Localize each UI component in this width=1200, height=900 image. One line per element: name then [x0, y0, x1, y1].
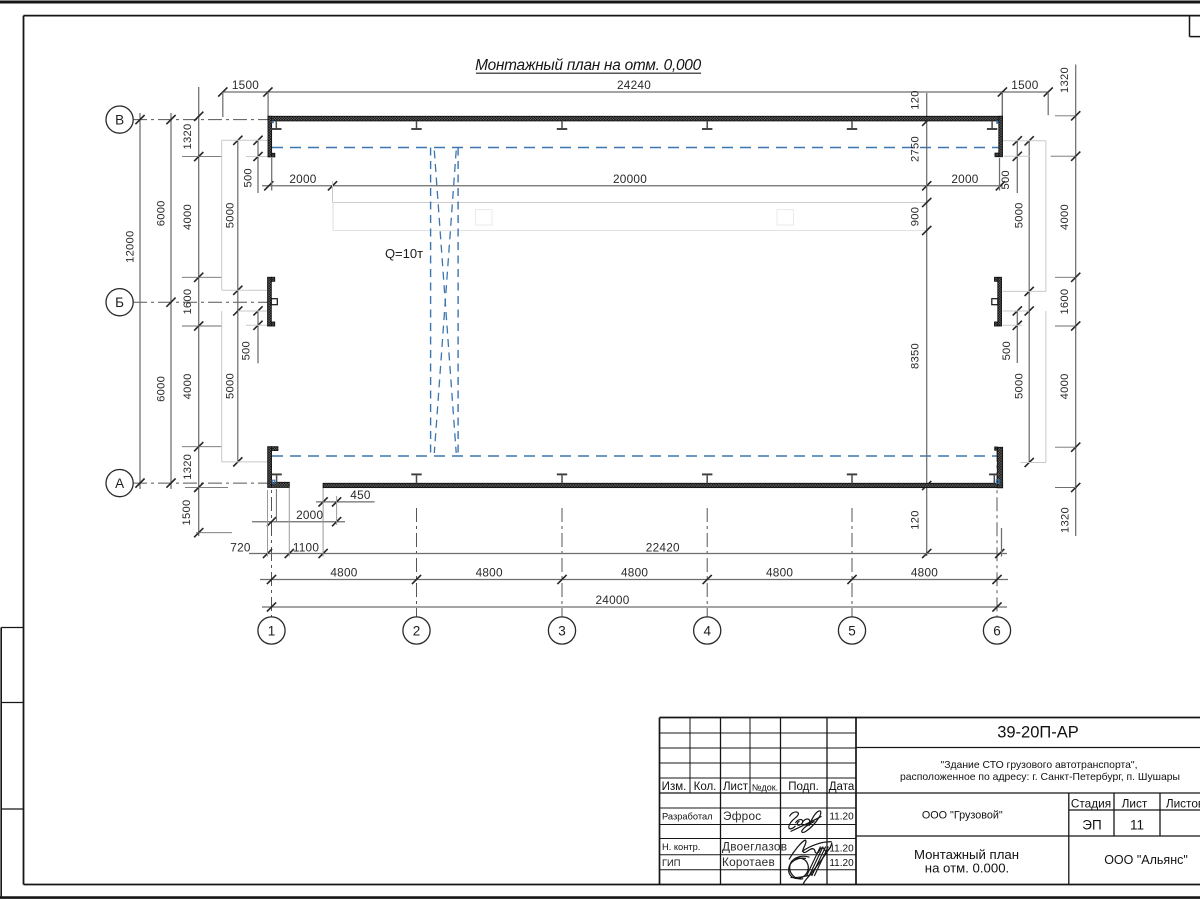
svg-text:5000: 5000	[1013, 373, 1025, 399]
svg-text:2: 2	[413, 623, 421, 638]
svg-text:6: 6	[993, 623, 1001, 638]
svg-text:1100: 1100	[293, 541, 320, 555]
svg-text:4800: 4800	[330, 566, 357, 580]
svg-text:Листов: Листов	[1166, 797, 1200, 811]
svg-text:Q=10т: Q=10т	[385, 246, 423, 261]
svg-text:4000: 4000	[1059, 204, 1071, 230]
svg-text:500: 500	[241, 341, 253, 360]
svg-text:1320: 1320	[1060, 507, 1072, 533]
svg-text:120: 120	[909, 90, 921, 109]
svg-text:Кол.: Кол.	[694, 781, 717, 793]
svg-text:2000: 2000	[951, 172, 978, 186]
svg-text:В: В	[115, 112, 124, 127]
svg-text:№док.: №док.	[752, 783, 778, 793]
svg-text:20000: 20000	[613, 172, 647, 186]
svg-text:2000: 2000	[289, 172, 316, 186]
svg-text:5000: 5000	[225, 202, 237, 228]
svg-text:1320: 1320	[1059, 67, 1071, 93]
svg-text:1600: 1600	[1059, 289, 1071, 315]
svg-text:4: 4	[703, 623, 711, 638]
svg-text:500: 500	[242, 168, 254, 187]
svg-text:"Здание СТО грузового автотран: "Здание СТО грузового автотранспорта",	[941, 760, 1138, 771]
svg-text:24240: 24240	[617, 78, 651, 92]
svg-text:Лист: Лист	[723, 781, 749, 793]
svg-text:11.20: 11.20	[829, 812, 854, 823]
svg-text:11: 11	[1130, 818, 1144, 833]
svg-text:ООО "Грузовой": ООО "Грузовой"	[922, 810, 1003, 822]
svg-text:39-20П-АР: 39-20П-АР	[997, 724, 1079, 742]
svg-text:5000: 5000	[1013, 202, 1025, 228]
svg-text:2750: 2750	[909, 136, 921, 162]
svg-text:2000: 2000	[296, 508, 323, 522]
svg-text:11.20: 11.20	[829, 858, 854, 869]
svg-text:4800: 4800	[476, 566, 503, 580]
svg-text:5000: 5000	[225, 373, 237, 399]
svg-text:1500: 1500	[181, 500, 193, 526]
svg-text:450: 450	[350, 488, 371, 502]
svg-text:24000: 24000	[595, 593, 629, 607]
svg-text:11.20: 11.20	[829, 843, 854, 854]
svg-text:500: 500	[1001, 341, 1013, 360]
svg-text:6000: 6000	[155, 376, 167, 402]
svg-text:8350: 8350	[909, 343, 921, 369]
svg-text:Двоеглазов: Двоеглазов	[722, 840, 787, 854]
svg-text:Коротаев: Коротаев	[722, 855, 775, 869]
svg-text:5: 5	[848, 623, 856, 638]
svg-text:на отм. 0.000.: на отм. 0.000.	[925, 861, 1009, 876]
svg-text:120: 120	[909, 510, 921, 529]
svg-text:720: 720	[230, 541, 251, 555]
svg-text:1500: 1500	[1011, 78, 1038, 92]
svg-text:ГИП: ГИП	[662, 858, 680, 868]
svg-text:3: 3	[558, 623, 566, 638]
svg-text:Дата: Дата	[829, 781, 855, 793]
svg-text:12000: 12000	[124, 231, 136, 263]
svg-text:22420: 22420	[646, 541, 680, 555]
svg-text:4000: 4000	[182, 373, 194, 399]
svg-text:4800: 4800	[911, 566, 938, 580]
svg-text:Подп.: Подп.	[788, 781, 819, 793]
svg-text:900: 900	[909, 207, 921, 226]
svg-text:ООО "Альянс": ООО "Альянс"	[1104, 853, 1188, 867]
svg-text:Стадия: Стадия	[1071, 797, 1111, 811]
svg-text:Н. контр.: Н. контр.	[662, 842, 700, 852]
svg-text:1320: 1320	[182, 124, 194, 150]
svg-text:Изм.: Изм.	[662, 781, 687, 793]
svg-text:ЭП: ЭП	[1082, 818, 1101, 833]
svg-text:Б: Б	[115, 295, 124, 310]
svg-text:4000: 4000	[1059, 373, 1071, 399]
svg-text:1500: 1500	[232, 78, 259, 92]
svg-text:Монтажный план на отм. 0,000: Монтажный план на отм. 0,000	[475, 57, 702, 74]
svg-text:расположенное по адресу: г. Са: расположенное по адресу: г. Санкт-Петерб…	[900, 771, 1180, 783]
svg-text:Разработал: Разработал	[662, 812, 713, 822]
svg-text:А: А	[115, 476, 124, 491]
svg-text:1320: 1320	[182, 454, 194, 480]
svg-text:500: 500	[1000, 170, 1012, 189]
svg-text:6000: 6000	[155, 200, 167, 226]
svg-text:4800: 4800	[766, 566, 793, 580]
svg-text:1: 1	[268, 623, 276, 638]
svg-text:1600: 1600	[182, 289, 194, 315]
svg-text:Лист: Лист	[1122, 797, 1148, 811]
svg-text:4000: 4000	[182, 204, 194, 230]
svg-text:4800: 4800	[621, 566, 648, 580]
svg-text:Эфрос: Эфрос	[723, 809, 761, 823]
